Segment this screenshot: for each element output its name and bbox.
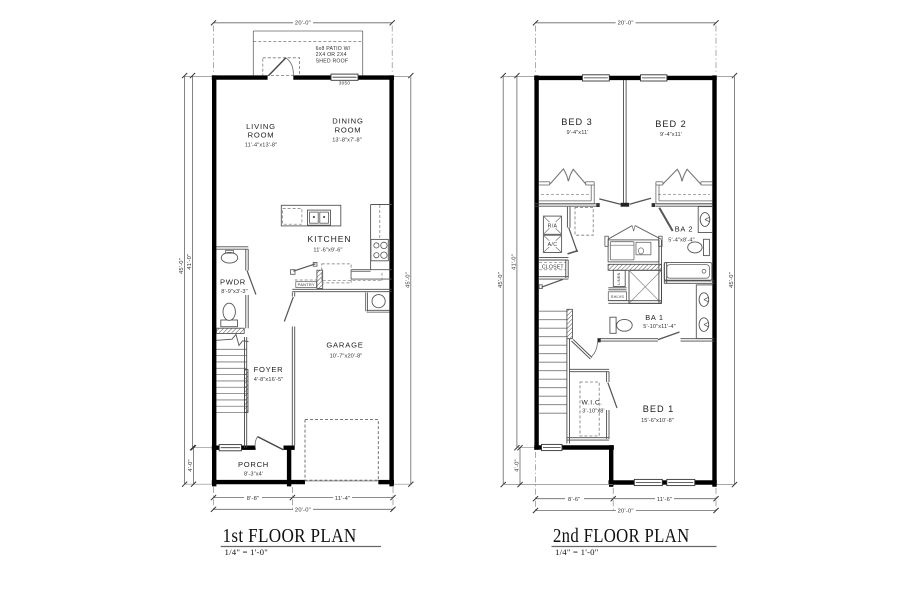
svg-text:BED 2: BED 2 — [655, 119, 687, 129]
svg-text:6x8 PATIO W/: 6x8 PATIO W/ — [316, 46, 351, 52]
svg-text:DINING: DINING — [332, 117, 363, 126]
svg-text:3'-10"x8': 3'-10"x8' — [582, 409, 605, 415]
svg-text:BA 2: BA 2 — [675, 224, 693, 233]
svg-text:4'-8"x16'-5": 4'-8"x16'-5" — [254, 377, 284, 383]
svg-text:4'-0": 4'-0" — [188, 459, 194, 472]
svg-text:8'-9"x3'-3": 8'-9"x3'-3" — [221, 289, 247, 295]
svg-text:45'-0": 45'-0" — [498, 272, 504, 288]
svg-text:FOYER: FOYER — [254, 365, 284, 374]
svg-text:BED 3: BED 3 — [561, 117, 593, 127]
svg-text:ROOM: ROOM — [248, 131, 275, 140]
svg-text:5'-10"x11'-4": 5'-10"x11'-4" — [643, 324, 675, 330]
svg-text:BA 1: BA 1 — [645, 313, 663, 322]
svg-text:4'-0": 4'-0" — [515, 459, 521, 472]
svg-text:BED 1: BED 1 — [643, 404, 675, 414]
svg-text:20'-0": 20'-0" — [618, 21, 634, 27]
svg-text:9'-4"x11': 9'-4"x11' — [660, 132, 682, 138]
svg-text:9'-4"x11': 9'-4"x11' — [567, 130, 589, 136]
svg-text:LIVING: LIVING — [246, 122, 276, 131]
svg-text:20'-0": 20'-0" — [618, 509, 634, 515]
svg-text:8'-8": 8'-8" — [247, 496, 260, 502]
svg-text:1st FLOOR PLAN: 1st FLOOR PLAN — [223, 525, 357, 548]
svg-text:2X4 OR 2X4: 2X4 OR 2X4 — [316, 52, 347, 58]
svg-text:45'-0": 45'-0" — [179, 258, 185, 274]
svg-text:PORCH: PORCH — [238, 460, 269, 469]
svg-text:1/4" = 1'-0": 1/4" = 1'-0" — [225, 547, 269, 557]
svg-text:3050: 3050 — [339, 81, 351, 86]
svg-text:8'-6": 8'-6" — [568, 497, 581, 503]
svg-text:LINEN: LINEN — [617, 272, 621, 284]
svg-text:13'-8"x7'-8": 13'-8"x7'-8" — [332, 137, 362, 143]
svg-text:PWDR: PWDR — [220, 277, 246, 286]
svg-text:W.I.C.: W.I.C. — [582, 400, 603, 407]
svg-text:2nd FLOOR PLAN: 2nd FLOOR PLAN — [553, 525, 690, 548]
svg-text:20'-0": 20'-0" — [295, 21, 311, 27]
svg-text:GARAGE: GARAGE — [326, 341, 363, 350]
svg-text:CLOSET: CLOSET — [542, 264, 565, 270]
svg-text:11'-4"x13'-8": 11'-4"x13'-8" — [245, 142, 277, 148]
svg-text:SHED ROOF: SHED ROOF — [316, 59, 349, 65]
svg-text:A/C: A/C — [548, 242, 558, 248]
svg-text:1/4" = 1'-0": 1/4" = 1'-0" — [555, 547, 599, 557]
svg-text:SHLVS: SHLVS — [611, 295, 625, 299]
svg-text:41'-0": 41'-0" — [187, 254, 193, 270]
svg-text:ROOM: ROOM — [335, 125, 362, 134]
svg-text:PANTRY: PANTRY — [298, 282, 315, 287]
svg-text:11'-4": 11'-4" — [335, 496, 351, 502]
svg-text:R/A: R/A — [548, 223, 558, 229]
svg-text:11'-6": 11'-6" — [657, 497, 673, 503]
svg-text:41'-0": 41'-0" — [512, 254, 518, 270]
svg-text:15'-6"x10'-8": 15'-6"x10'-8" — [641, 418, 674, 424]
svg-text:8'-3"x4': 8'-3"x4' — [244, 472, 263, 478]
svg-text:45'-0": 45'-0" — [405, 272, 411, 288]
svg-text:45'-0": 45'-0" — [729, 272, 735, 288]
svg-text:KITCHEN: KITCHEN — [307, 234, 351, 244]
svg-text:20'-0": 20'-0" — [295, 508, 311, 514]
svg-text:11'-6"x9'-6": 11'-6"x9'-6" — [313, 247, 342, 253]
svg-text:10'-7"x20'-8": 10'-7"x20'-8" — [330, 353, 363, 359]
